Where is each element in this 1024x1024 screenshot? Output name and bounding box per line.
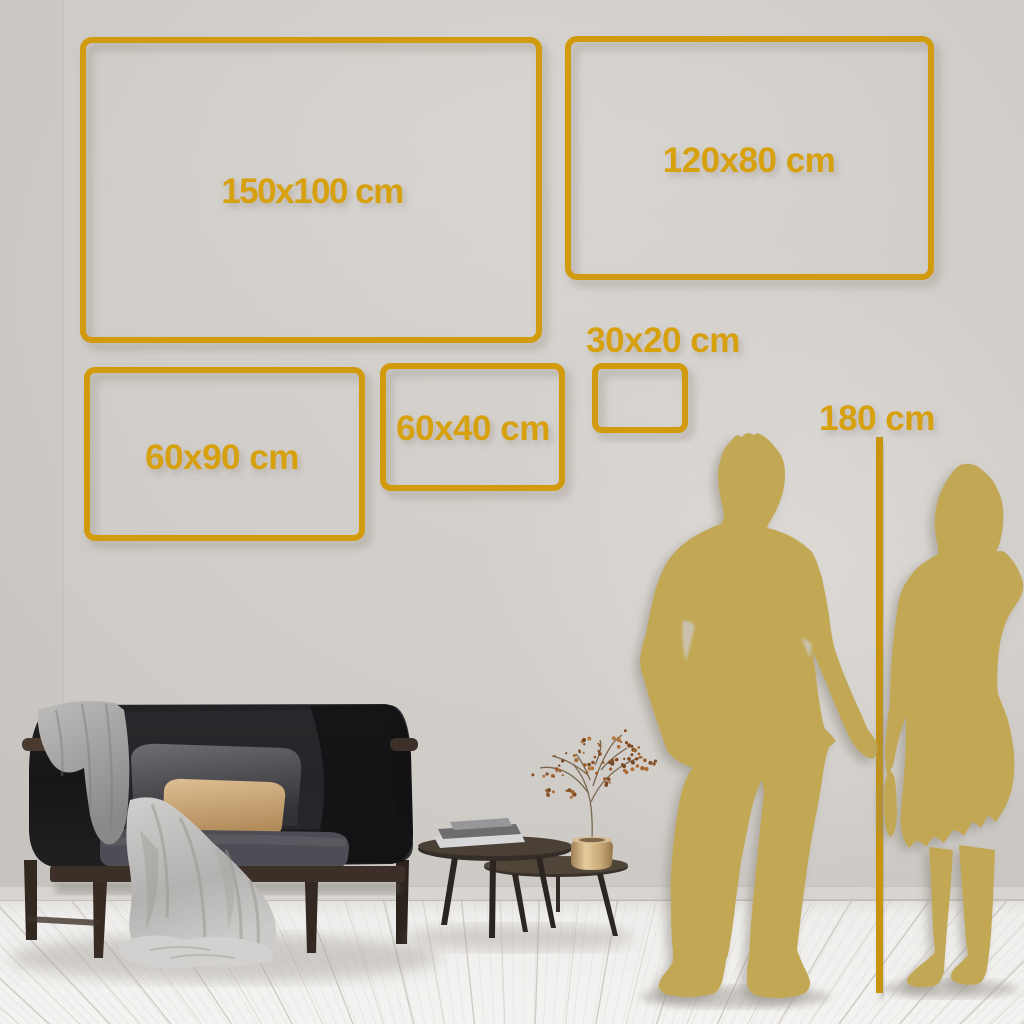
svg-text:180 cm: 180 cm xyxy=(819,399,935,438)
svg-text:60x90 cm: 60x90 cm xyxy=(145,438,299,477)
svg-text:60x40 cm: 60x40 cm xyxy=(396,409,550,448)
svg-text:30x20 cm: 30x20 cm xyxy=(586,321,740,360)
svg-text:150x100 cm: 150x100 cm xyxy=(221,172,403,211)
svg-text:120x80 cm: 120x80 cm xyxy=(663,141,836,180)
